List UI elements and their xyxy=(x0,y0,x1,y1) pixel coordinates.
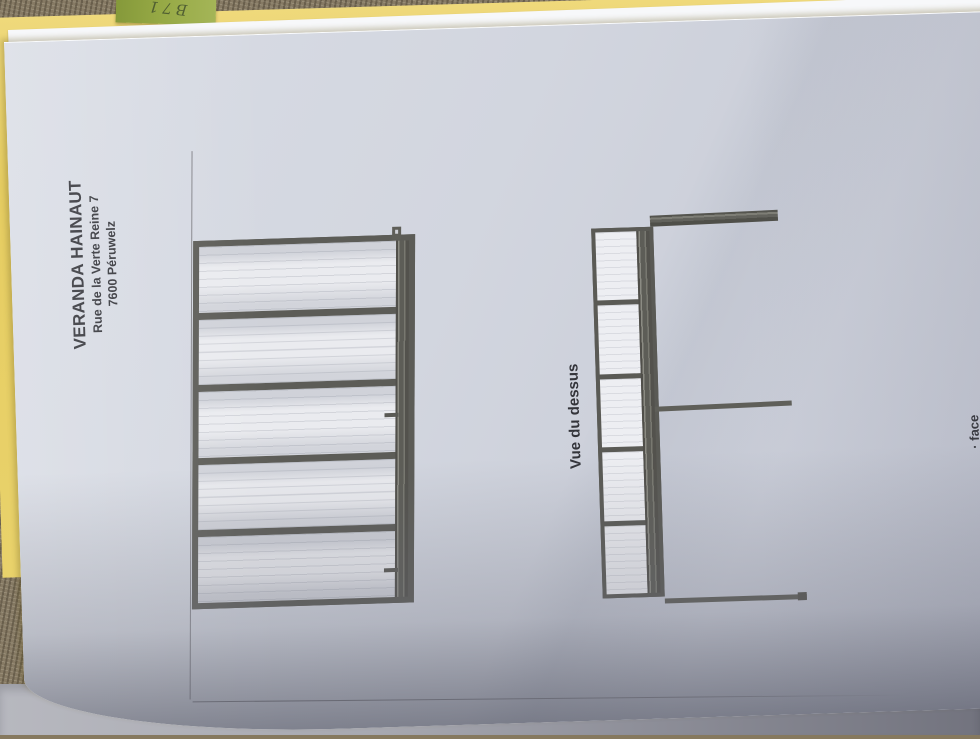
bracket-hole xyxy=(395,230,398,234)
edge-text-fragment: · face xyxy=(963,329,980,449)
elevation-panel-stack xyxy=(198,241,396,603)
photo-of-veranda-plan: { "scene": { "note_label": "B71" }, "doc… xyxy=(0,0,980,735)
elevation-right-profile xyxy=(395,240,409,597)
elevation-panel xyxy=(198,459,395,531)
roof-panel-cell xyxy=(602,451,645,521)
elevation-panel xyxy=(199,313,396,385)
paper-sheet: VERANDA HAINAUT Rue de la Verte Reine 7 … xyxy=(4,9,980,739)
sticky-note-label: B71 xyxy=(144,0,188,19)
top-view-label: Vue du dessus xyxy=(564,350,588,483)
elevation-drawing xyxy=(4,10,980,739)
corner-bracket xyxy=(392,227,401,240)
roof-panel-cell xyxy=(595,231,638,301)
sticky-note: B71 xyxy=(116,0,217,26)
elevation-panel xyxy=(199,241,396,313)
roof-panel-cell xyxy=(604,525,647,595)
wall-end-cap xyxy=(798,592,807,600)
drawing-border-bottom xyxy=(193,695,908,703)
elevation-frame xyxy=(192,234,415,609)
top-view-roof-strip xyxy=(591,227,665,599)
fixing-clip-upper xyxy=(384,413,398,417)
elevation-panel xyxy=(198,386,395,458)
fixing-clip-lower xyxy=(384,568,398,572)
roof-panel-cell xyxy=(598,305,641,375)
roof-panel-cell xyxy=(600,378,643,448)
elevation-panel xyxy=(198,531,395,603)
